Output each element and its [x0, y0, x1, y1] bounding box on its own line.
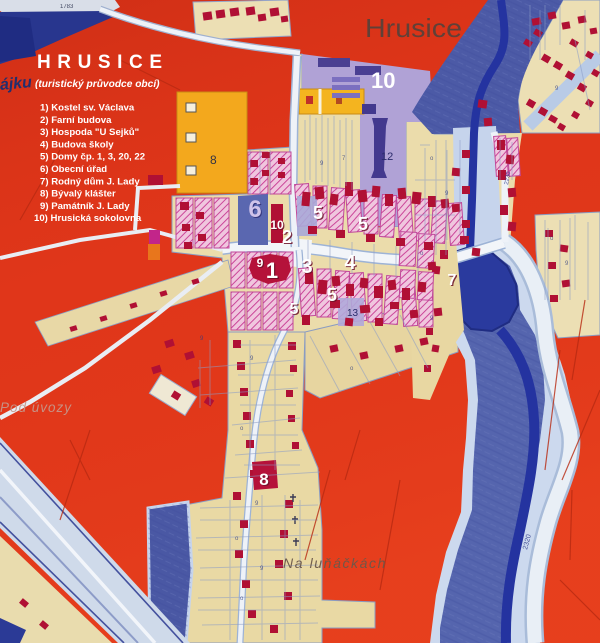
svg-text:9) Památník J. Lady: 9) Památník J. Lady: [40, 201, 130, 212]
svg-text:7) Rodný dům J. Lady: 7) Rodný dům J. Lady: [40, 176, 140, 187]
svg-text:1783: 1783: [60, 4, 74, 10]
svg-text:Na luňáčkách: Na luňáčkách: [283, 555, 387, 571]
svg-text:8: 8: [259, 470, 268, 489]
svg-text:8) Bývalý klášter: 8) Bývalý klášter: [40, 189, 116, 200]
svg-text:6: 6: [248, 196, 261, 223]
svg-text:5: 5: [327, 285, 337, 305]
svg-text:5: 5: [290, 301, 299, 318]
svg-text:4: 4: [344, 252, 356, 274]
svg-text:10: 10: [270, 218, 284, 232]
svg-text:10: 10: [371, 68, 395, 93]
svg-text:6) Obecní úřad: 6) Obecní úřad: [40, 164, 107, 175]
svg-text:ájku: ájku: [0, 74, 33, 94]
svg-text:8: 8: [210, 153, 217, 167]
svg-text:3: 3: [301, 256, 312, 278]
svg-text:7: 7: [448, 272, 457, 289]
svg-text:1) Kostel sv. Václava: 1) Kostel sv. Václava: [40, 103, 135, 114]
svg-text:(turistický průvodce obcí): (turistický průvodce obcí): [35, 78, 160, 90]
svg-text:10) Hrusická sokolovna: 10) Hrusická sokolovna: [34, 213, 142, 224]
svg-text:12: 12: [381, 151, 393, 163]
svg-text:Hrusice: Hrusice: [365, 13, 462, 43]
svg-text:5: 5: [358, 214, 368, 234]
svg-text:5: 5: [313, 203, 323, 223]
svg-text:1: 1: [266, 258, 278, 283]
svg-text:4) Budova školy: 4) Budova školy: [40, 139, 114, 150]
svg-text:13: 13: [347, 308, 359, 319]
svg-text:2) Farní budova: 2) Farní budova: [40, 115, 112, 126]
svg-text:Pod úvozy: Pod úvozy: [0, 400, 72, 415]
svg-text:5) Domy čp. 1, 3, 20, 22: 5) Domy čp. 1, 3, 20, 22: [40, 152, 145, 163]
svg-text:3) Hospoda "U Sejků": 3) Hospoda "U Sejků": [40, 127, 139, 138]
svg-text:9: 9: [257, 256, 264, 270]
